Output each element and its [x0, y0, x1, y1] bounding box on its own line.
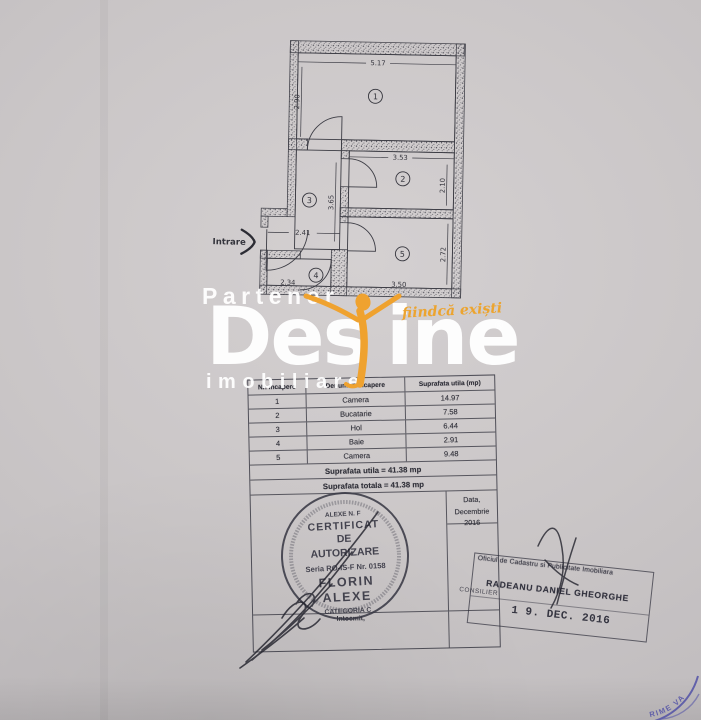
corner-stamp: RIME VA	[638, 676, 699, 720]
scanned-floorplan-document: 5.17 2.90 3.53 2.10 3.65 2.41 2.72 3.50 …	[0, 0, 701, 720]
stamp-category: CATEGORIA C	[324, 607, 371, 616]
stamp-line2: DE	[337, 533, 352, 546]
stamp-line1: CERTIFICAT	[307, 518, 379, 534]
stamp-line3: AUTORIZARE	[310, 545, 379, 561]
stamp-serial: Seria RO-IS-F Nr. 0158	[305, 561, 386, 574]
stamp-last-name: ALEXE	[322, 589, 372, 606]
stamp-holder-line: ALEXE N. F	[325, 510, 361, 519]
